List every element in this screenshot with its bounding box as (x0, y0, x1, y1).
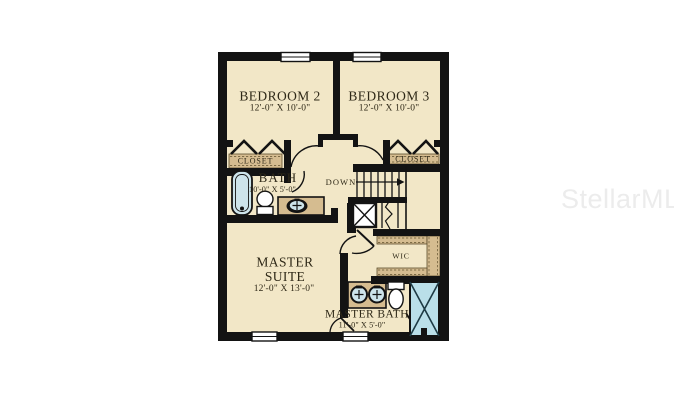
toilet-tank (257, 207, 273, 215)
master-sink-left (351, 286, 367, 303)
master-suite-label-1: MASTER (256, 255, 313, 270)
wic-label: WIC (392, 252, 410, 261)
bedroom3-dims: 12'-0" X 10'-0" (359, 104, 420, 114)
wall-bedroom-divider (333, 61, 340, 134)
shower-drain (421, 328, 427, 336)
floor-plan-image: BEDROOM 2 12'-0" X 10'-0" BEDROOM 3 12'-… (0, 0, 674, 400)
wall-top (218, 52, 449, 61)
wall-right (440, 52, 449, 341)
wall-stair-top (353, 164, 440, 172)
wall-wic-top (373, 229, 440, 236)
down-label: DOWN (326, 177, 357, 187)
wall-bath-bottom (227, 215, 331, 223)
master-suite-dims: 12'-0" X 13'-0" (254, 284, 315, 294)
closet-left-label: CLOSET (238, 157, 274, 166)
window-bedroom2 (281, 53, 310, 62)
shower (410, 282, 439, 336)
master-toilet-bowl (389, 289, 403, 309)
master-bath-dims: 11'-0" X 5'-0" (339, 321, 386, 330)
tub-drain (240, 207, 244, 211)
window-master-suite (252, 332, 277, 341)
wall-closet-left-stub (284, 140, 291, 168)
bedroom2-dims: 12'-0" X 10'-0" (250, 104, 311, 114)
wall-hall-tbar (318, 134, 358, 140)
window-master-bath (343, 332, 368, 341)
master-sink-right (369, 286, 385, 303)
bedroom3-label: BEDROOM 3 (348, 89, 429, 104)
closet-right-label: CLOSET (395, 155, 431, 164)
master-bath-label: MASTER BATH (325, 309, 409, 321)
wall-left (218, 52, 227, 341)
master-suite-label-2: SUITE (265, 269, 305, 284)
bedroom2-label: BEDROOM 2 (239, 89, 320, 104)
window-bedroom3 (353, 53, 381, 62)
chase-box (353, 203, 376, 227)
watermark: StellarMLS (561, 184, 674, 215)
bath-label: BATH (259, 170, 298, 185)
bath-dims: 10'-0" X 5'-0" (249, 185, 296, 194)
